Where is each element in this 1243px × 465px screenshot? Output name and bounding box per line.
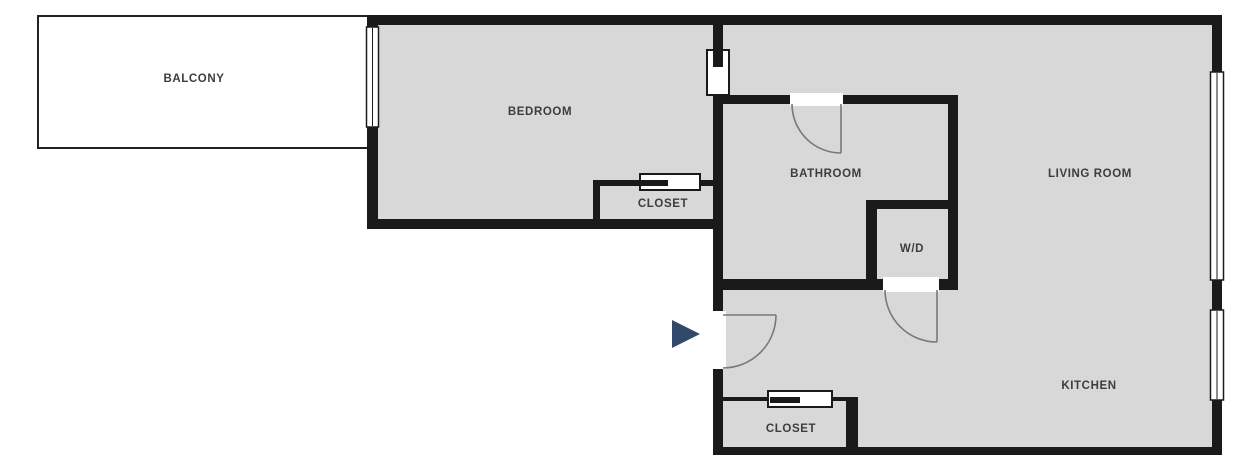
living-room-label: LIVING ROOM — [1048, 168, 1132, 180]
wall-center-vertical-upper — [713, 15, 723, 67]
living-room-window — [1211, 72, 1224, 280]
balcony-window — [367, 27, 379, 127]
bathroom-label: BATHROOM — [790, 168, 862, 180]
bedroom-floor — [368, 15, 722, 229]
bedroom-label: BEDROOM — [508, 106, 572, 118]
bedroom-closet-sliding-door — [640, 174, 700, 190]
entry-arrow-icon — [672, 320, 700, 348]
kitchen-label: KITCHEN — [1061, 380, 1116, 392]
wall-bedroom-closet-left — [593, 180, 600, 229]
wall-top — [368, 15, 1222, 25]
wall-right-middle — [1212, 280, 1222, 310]
wall-bottom — [713, 447, 1222, 455]
wall-right-lower — [1212, 400, 1222, 455]
wall-wd-left — [866, 200, 877, 290]
living-kitchen-floor — [713, 15, 1222, 455]
wall-bathroom-right — [948, 95, 958, 290]
entry-closet-sliding-door — [768, 391, 832, 407]
balcony-label: BALCONY — [163, 73, 224, 85]
floor-plan-drawing — [0, 0, 1243, 465]
kitchen-window — [1211, 310, 1224, 400]
wall-bedroom-left-lower — [367, 127, 378, 229]
wall-right-upper — [1212, 15, 1222, 72]
bedroom-closet-label: CLOSET — [638, 198, 688, 210]
wd-label: W/D — [900, 243, 924, 255]
wall-entry-closet-right — [846, 397, 858, 455]
wall-center-vertical-lower — [713, 367, 723, 455]
wall-wd-top — [866, 200, 958, 209]
entry-closet-label: CLOSET — [766, 423, 816, 435]
floor-plan: BALCONY BEDROOM CLOSET BATHROOM W/D LIVI… — [0, 0, 1243, 465]
wall-bedroom-bottom — [368, 219, 722, 229]
